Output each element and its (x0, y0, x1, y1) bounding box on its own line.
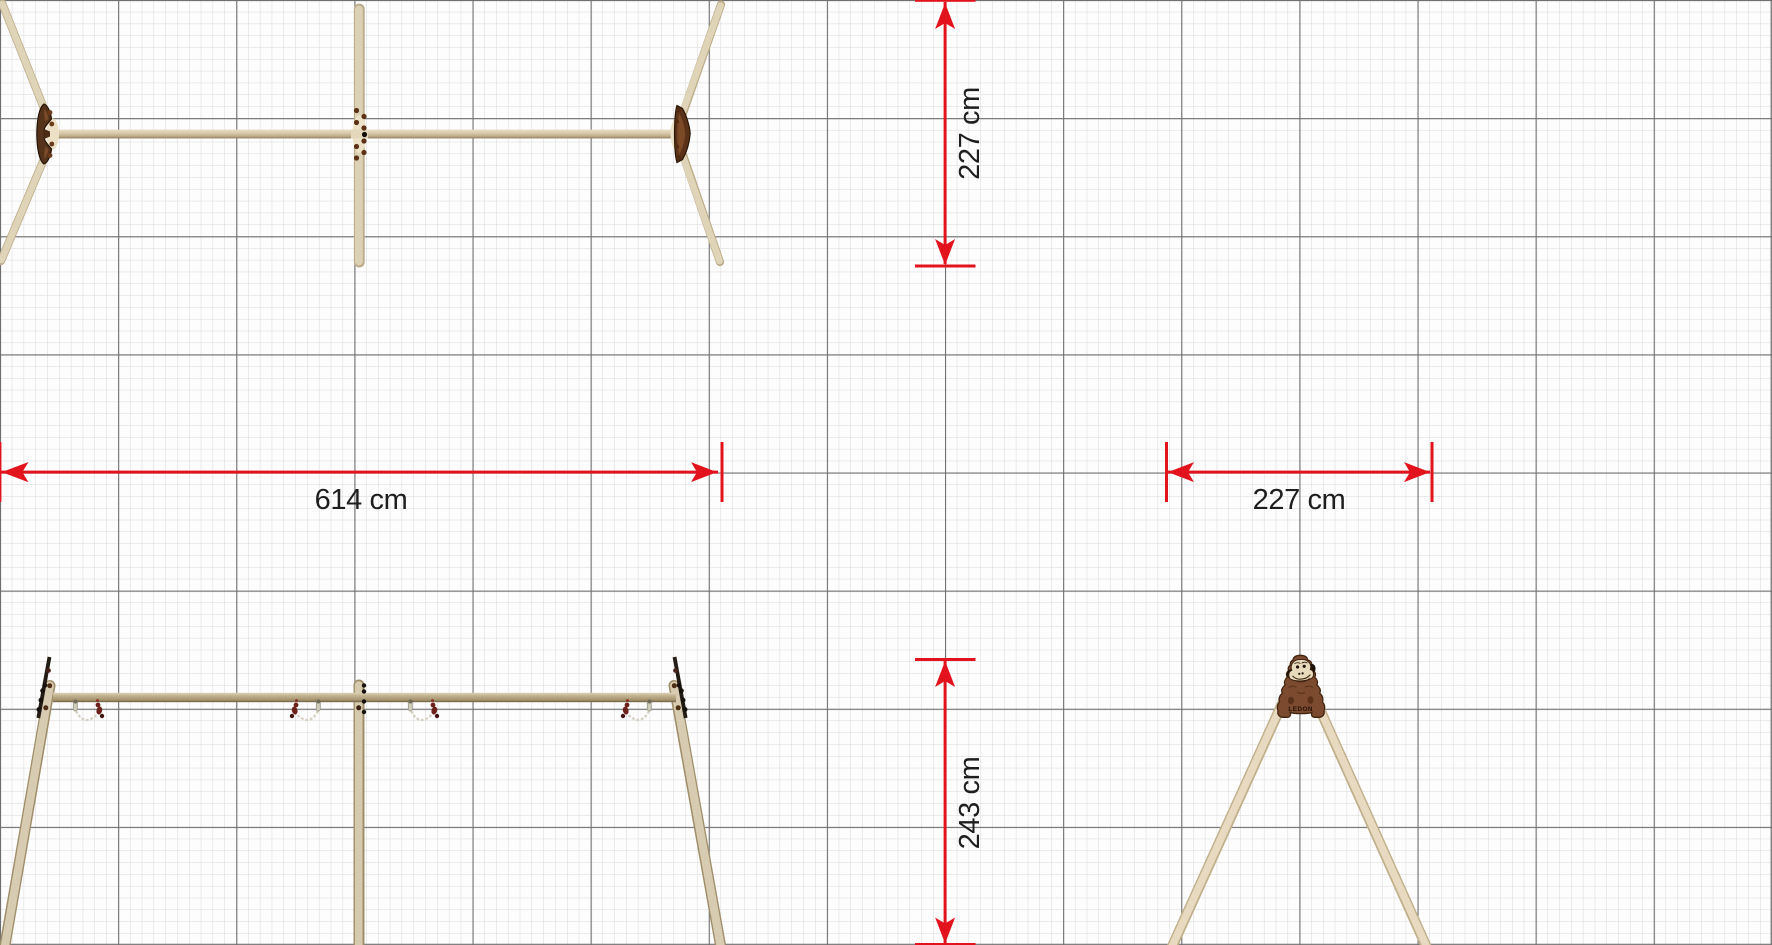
svg-text:614 cm: 614 cm (315, 484, 408, 516)
svg-text:LEDON: LEDON (1288, 706, 1313, 713)
svg-text:227 cm: 227 cm (1253, 484, 1346, 516)
svg-text:227 cm: 227 cm (954, 87, 986, 180)
svg-text:243 cm: 243 cm (954, 757, 986, 850)
